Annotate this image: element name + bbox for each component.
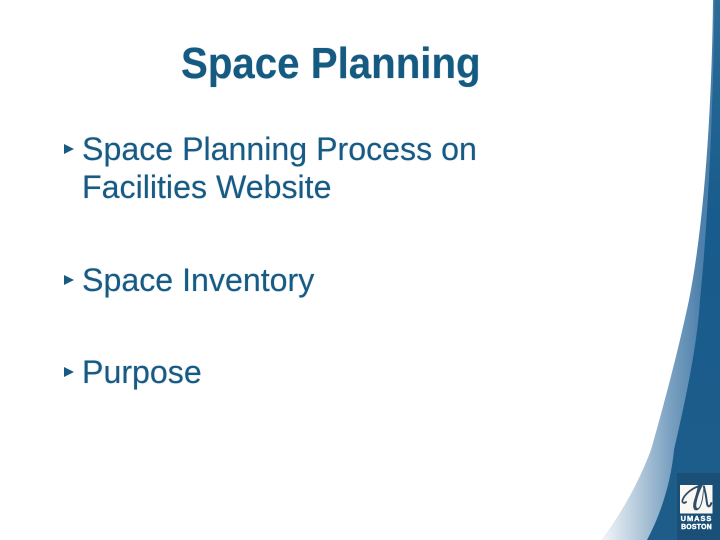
svg-text:UMASS: UMASS — [681, 514, 713, 523]
svg-text:BOSTON: BOSTON — [681, 524, 712, 531]
